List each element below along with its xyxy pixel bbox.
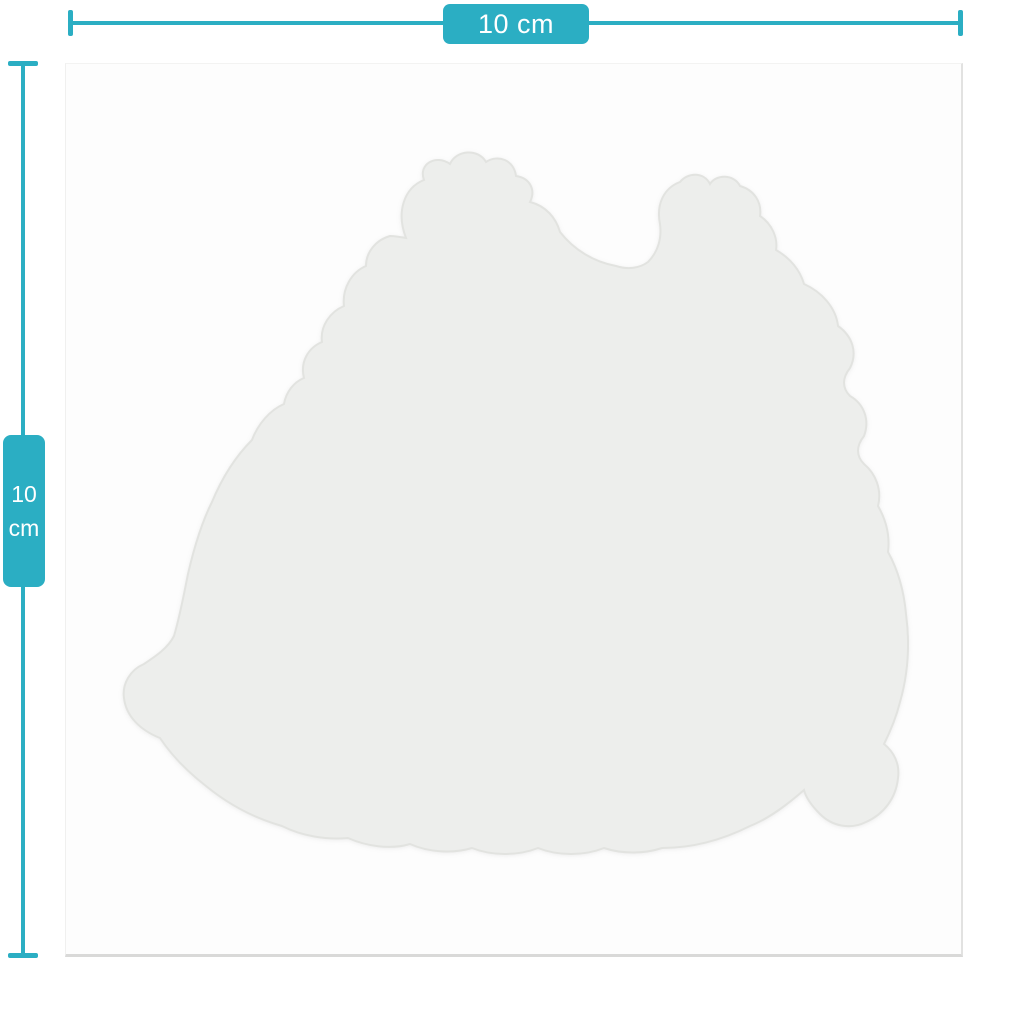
width-dimension-end-tick xyxy=(958,10,963,36)
width-dimension-start-tick xyxy=(68,10,73,36)
height-dimension-label: 10 cm xyxy=(3,435,45,587)
product-backing-card xyxy=(65,63,963,957)
height-dimension-start-tick xyxy=(8,61,38,66)
width-dimension-label: 10 cm xyxy=(443,4,589,44)
height-dimension-unit: cm xyxy=(9,511,40,546)
product-dimension-diagram: 10 cm 10 cm xyxy=(0,0,1024,1024)
height-dimension-value: 10 xyxy=(11,477,37,512)
height-dimension-end-tick xyxy=(8,953,38,958)
